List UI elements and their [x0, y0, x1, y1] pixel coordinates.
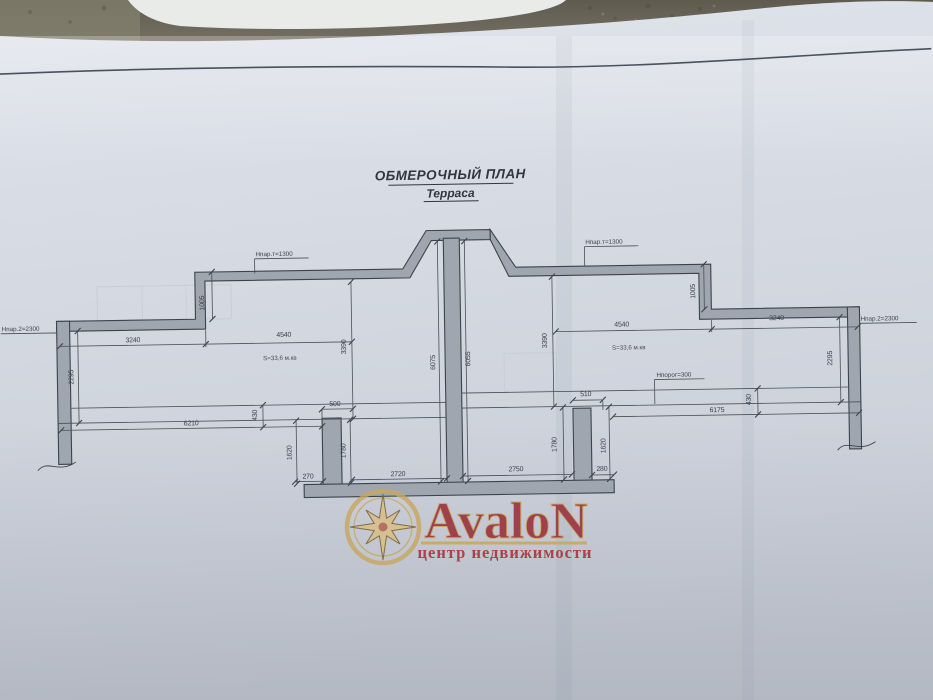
dim-left-wall: 2295 [68, 369, 75, 384]
dim-right-ledge: 430 [746, 394, 753, 405]
note-left-parapet: Нпар.т=1300 [255, 251, 293, 259]
dim-right-pillar-left: 1780 [551, 437, 558, 452]
dim-right-top-inner: 4540 [614, 321, 629, 328]
dim-left-pillar-offset: 270 [302, 473, 313, 480]
dim-right-top-outer: 3240 [769, 315, 784, 322]
note-left-area: S=33,6 м.кв [263, 355, 297, 363]
wall-center-divider [443, 238, 463, 494]
plan-photo-canvas: ОБМЕРОЧНЫЙ ПЛАН Терраса [0, 0, 933, 700]
dim-left-top-outer: 3240 [125, 337, 140, 344]
dim-right-bottom: 6175 [710, 407, 725, 414]
dim-left-step: 1005 [199, 295, 206, 310]
dim-left-ledge: 430 [252, 409, 259, 420]
paper-top-shine [0, 36, 933, 166]
photographed-floor-plan: ОБМЕРОЧНЫЙ ПЛАН Терраса [0, 0, 933, 700]
dim-left-pillar-left: 1620 [286, 445, 293, 460]
dim-center-right: 6055 [465, 351, 472, 366]
dim-center-left: 6075 [430, 355, 437, 370]
dim-right-opening: 2750 [508, 466, 523, 473]
dim-right-pillar-right: 1620 [600, 438, 607, 453]
wall-left-outer [57, 321, 72, 464]
dim-left-opening: 2720 [391, 471, 406, 478]
note-right-parapet: Нпар.т=1300 [585, 239, 623, 247]
page-title: ОБМЕРОЧНЫЙ ПЛАН [375, 165, 526, 183]
note-threshold: Нпорог=300 [656, 371, 692, 379]
watermark-logo: AvaloN центр недвижимости [347, 491, 593, 563]
dim-right-wall: 2295 [827, 351, 834, 366]
paper-crease-2 [742, 20, 754, 700]
dim-left-top-inner: 4540 [276, 332, 291, 339]
dim-left-bottom: 6210 [184, 420, 199, 427]
dim-right-step: 1005 [690, 284, 697, 299]
brand-name: AvaloN [424, 493, 588, 550]
dim-right-depth: 3390 [542, 333, 549, 348]
dim-right-pillar-width: 510 [580, 391, 591, 398]
page-subtitle: Терраса [426, 186, 475, 201]
dim-left-pillar-right: 1780 [340, 443, 347, 458]
compass-rose-icon [347, 491, 419, 563]
note-left-wall: Нпар.2=2300 [2, 326, 41, 334]
note-right-area: S=33,6 м.кв [612, 344, 646, 352]
dim-right-pillar-offset: 280 [596, 466, 607, 473]
dim-left-depth: 3390 [341, 339, 348, 354]
note-right-wall: Нпар.2=2300 [861, 315, 900, 323]
paper-crease-1 [556, 36, 572, 700]
brand-tagline: центр недвижимости [418, 543, 593, 562]
dim-left-pillar-width: 500 [329, 401, 340, 408]
